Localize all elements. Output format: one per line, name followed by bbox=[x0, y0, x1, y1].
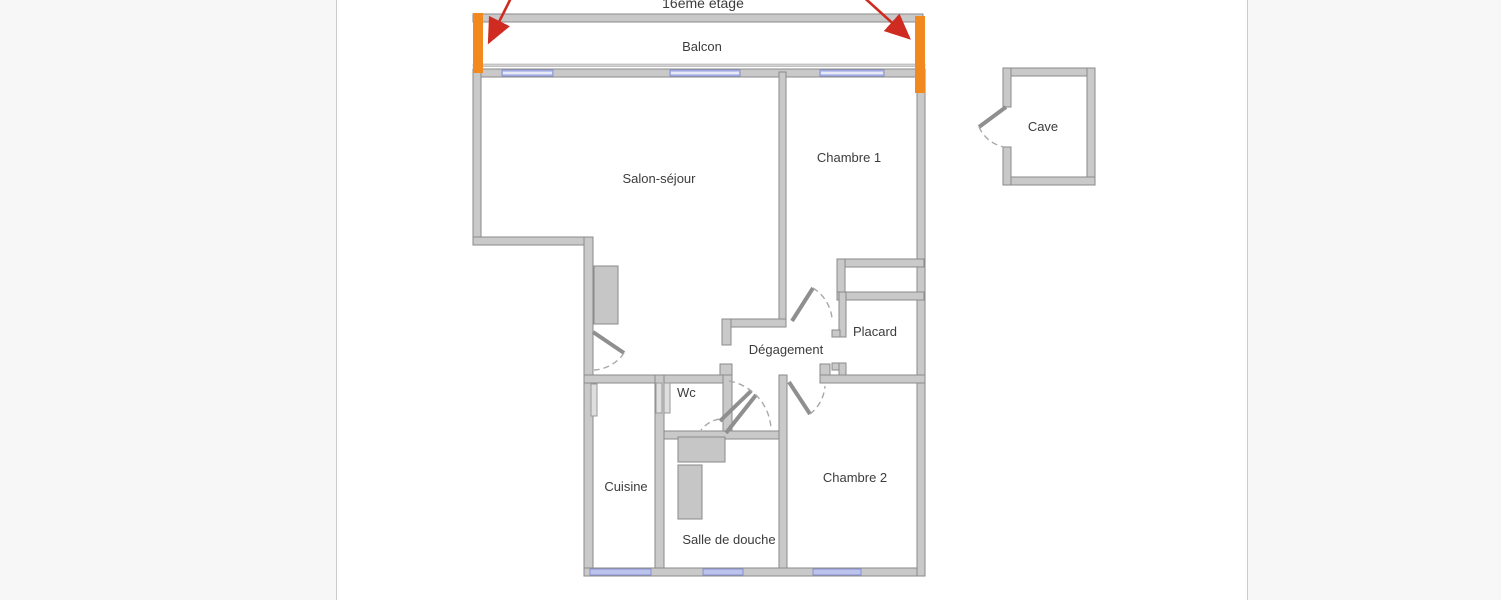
wall-segment bbox=[473, 69, 481, 244]
room-label-chambre-1: Chambre 1 bbox=[817, 150, 881, 165]
room-label-cuisine: Cuisine bbox=[604, 479, 647, 494]
wall-segment bbox=[820, 375, 925, 383]
room-label-salle-de-douche: Salle de douche bbox=[682, 532, 775, 547]
room-label-cave: Cave bbox=[1028, 119, 1058, 134]
wall-segment bbox=[832, 330, 840, 337]
room-label-wc: Wc bbox=[677, 385, 696, 400]
door-swing-arc bbox=[701, 419, 719, 430]
room-label-salon-sejour: Salon-séjour bbox=[623, 171, 697, 186]
wall-segment bbox=[473, 237, 592, 245]
wall-segment bbox=[820, 364, 830, 375]
wall-segment bbox=[722, 319, 786, 327]
balcony-right-highlight bbox=[915, 16, 925, 93]
balcony-left-highlight bbox=[473, 13, 483, 73]
wall-inset bbox=[664, 383, 670, 413]
floor-plan: 16ème étage Balcon Salon-séjour Chambre … bbox=[0, 0, 1501, 600]
wall-segment bbox=[1003, 68, 1011, 107]
door-leaf bbox=[792, 288, 813, 321]
room-label-chambre-2: Chambre 2 bbox=[823, 470, 887, 485]
duct-box bbox=[594, 266, 618, 324]
door-swing-arc bbox=[979, 127, 1004, 147]
wall-inset bbox=[591, 384, 597, 416]
room-label-balcon: Balcon bbox=[682, 39, 722, 54]
wall-segment bbox=[1003, 147, 1011, 185]
washbasin bbox=[678, 437, 725, 462]
balcony-edge-line bbox=[473, 64, 925, 67]
shower bbox=[678, 465, 702, 519]
window bbox=[590, 569, 651, 575]
wall-segment bbox=[1003, 177, 1095, 185]
door-leaf bbox=[789, 382, 810, 414]
door-swing-arc bbox=[594, 353, 624, 370]
wall-segment bbox=[779, 72, 786, 326]
wall-inset bbox=[656, 383, 662, 413]
door-swing-arc bbox=[810, 386, 825, 414]
wall-segment bbox=[722, 319, 731, 345]
wall-segment bbox=[1087, 68, 1095, 185]
door-leaf bbox=[593, 332, 624, 353]
door-leaf bbox=[979, 107, 1006, 127]
wall-segment bbox=[837, 292, 924, 300]
door-swing-arc bbox=[813, 288, 832, 318]
page: 16ème étage Balcon Salon-séjour Chambre … bbox=[0, 0, 1501, 600]
window bbox=[703, 569, 743, 575]
window bbox=[813, 569, 861, 575]
wall-segment bbox=[779, 375, 787, 568]
wall-segment bbox=[1003, 68, 1095, 76]
wall-segment bbox=[917, 69, 925, 576]
floor-title: 16ème étage bbox=[662, 0, 744, 11]
wall-segment bbox=[720, 364, 732, 375]
wall-segment bbox=[837, 259, 924, 267]
room-label-degagement: Dégagement bbox=[749, 342, 824, 357]
room-label-placard: Placard bbox=[853, 324, 897, 339]
doors bbox=[593, 288, 832, 433]
wall-segment bbox=[473, 14, 923, 22]
